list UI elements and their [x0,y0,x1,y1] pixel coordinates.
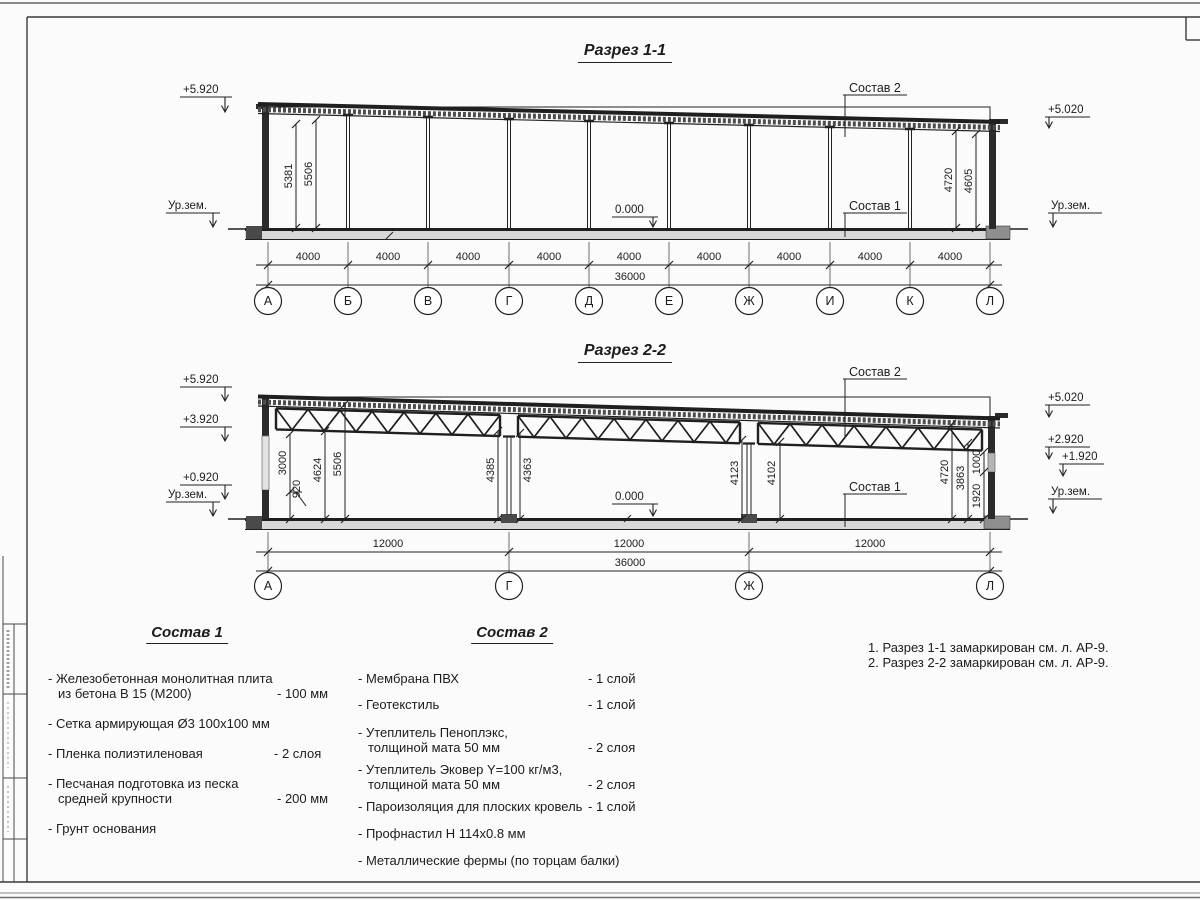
leader-label-sostav2: Состав 2 [849,365,901,379]
leader-label-sostav1: Состав 1 [849,199,901,213]
dim-label: 4624 [312,458,324,482]
dim-label: 12000 [373,538,404,550]
list-item: толщиной мата 50 мм [368,777,500,792]
ground-level-mark: Ур.зем. [1051,486,1090,498]
dim-label-total: 36000 [615,557,646,569]
dim-label: 4605 [963,169,975,193]
list-item-value: - 200 мм [277,791,328,806]
dim-label: 12000 [614,538,645,550]
axis-bubble: К [906,294,913,308]
list-item: - Утеплитель Пеноплэкс, [358,725,508,740]
dim-label: 4000 [617,251,641,263]
axis-bubble: Д [585,294,593,308]
sostav2-header: Состав 2 [471,624,553,644]
leader-label-sostav2: Состав 2 [849,81,901,95]
dim-label: 5381 [283,164,295,188]
sostav1-header: Состав 1 [146,624,228,644]
section1-title: Разрез 1-1 [578,42,672,63]
list-item-value: - 2 слоя [588,777,635,792]
dim-label: 1920 [971,484,983,508]
axis-bubble: А [264,294,272,308]
ground-level-mark: Ур.зем. [1051,200,1090,212]
axis-bubble: Ж [743,579,755,593]
dim-label: 4363 [522,458,534,482]
axis-bubble: Ж [743,294,755,308]
elevation-mark: +5.920 [183,374,219,386]
dim-label: 3000 [277,451,289,475]
zero-level-mark: 0.000 [615,204,644,216]
axis-bubble: Л [986,294,994,308]
dim-label: 1000 [971,450,983,474]
elevation-mark: +0.920 [183,472,219,484]
ground-level-mark: Ур.зем. [168,489,207,501]
list-item: - Грунт основания [48,821,156,836]
dim-label: 5506 [332,452,344,476]
zero-level-mark: 0.000 [615,491,644,503]
list-item-value: - 2 слоя [274,746,321,761]
list-item: - Железобетонная монолитная плита [48,671,273,686]
ground-level-mark: Ур.зем. [168,200,207,212]
list-item: - Геотекстиль [358,697,439,712]
dim-label: 4000 [938,251,962,263]
dim-label: 12000 [855,538,886,550]
note-line: 1. Разрез 1-1 замаркирован см. л. АР-9. [868,640,1109,655]
dim-label: 4720 [943,168,955,192]
dim-label: 4720 [939,460,951,484]
leader-label-sostav1: Состав 1 [849,480,901,494]
list-item-value: - 1 слой [588,671,636,686]
list-item: - Пароизоляция для плоских кровель [358,799,582,814]
axis-bubble: Г [506,294,513,308]
dim-label: 4385 [485,458,497,482]
dim-label: 4123 [729,461,741,485]
dim-label-total: 36000 [615,271,646,283]
dim-label: 4000 [456,251,480,263]
list-item: - Металлические фермы (по торцам балки) [358,853,619,868]
elevation-mark: +1.920 [1062,451,1098,463]
elevation-mark: +3.920 [183,414,219,426]
list-item-value: - 1 слой [588,799,636,814]
list-item: - Мембрана ПВХ [358,671,459,686]
elevation-mark: +2.920 [1048,434,1084,446]
axis-bubble: В [424,294,432,308]
list-item: - Песчаная подготовка из песка [48,776,238,791]
axis-bubble: Б [344,294,352,308]
dim-label: 4000 [697,251,721,263]
list-item: - Сетка армирующая Ø3 100х100 мм [48,716,270,731]
list-item: - Утеплитель Эковер Y=100 кг/м3, [358,762,562,777]
dim-label: 920 [291,480,303,498]
dim-label: 4000 [376,251,400,263]
axis-bubble: И [826,294,835,308]
dim-label: 4000 [537,251,561,263]
list-item: - Профнастил Н 114х0.8 мм [358,826,526,841]
dim-label: 4000 [777,251,801,263]
elevation-mark: +5.020 [1048,104,1084,116]
dim-label: 5506 [303,162,315,186]
elevation-mark: +5.920 [183,84,219,96]
list-item-value: - 100 мм [277,686,328,701]
dim-label: 4000 [858,251,882,263]
list-item: - Пленка полиэтиленовая [48,746,203,761]
axis-bubble: Г [506,579,513,593]
list-item: средней крупности [58,791,172,806]
list-item: толщиной мата 50 мм [368,740,500,755]
drawing-linework [0,0,1200,900]
list-item-value: - 2 слоя [588,740,635,755]
drawing-sheet: Разрез 1-1 +5.920 Ур.зем. +5.020 Ур.зем.… [0,0,1200,900]
axis-bubble: Е [665,294,673,308]
elevation-mark: +5.020 [1048,392,1084,404]
dim-label: 4102 [766,461,778,485]
dim-label: 3863 [955,466,967,490]
note-line: 2. Разрез 2-2 замаркирован см. л. АР-9. [868,655,1109,670]
axis-bubble: Л [986,579,994,593]
dim-label: 4000 [296,251,320,263]
list-item-value: - 1 слой [588,697,636,712]
list-item: из бетона В 15 (М200) [58,686,192,701]
axis-bubble: А [264,579,272,593]
section2-title: Разрез 2-2 [578,342,672,363]
